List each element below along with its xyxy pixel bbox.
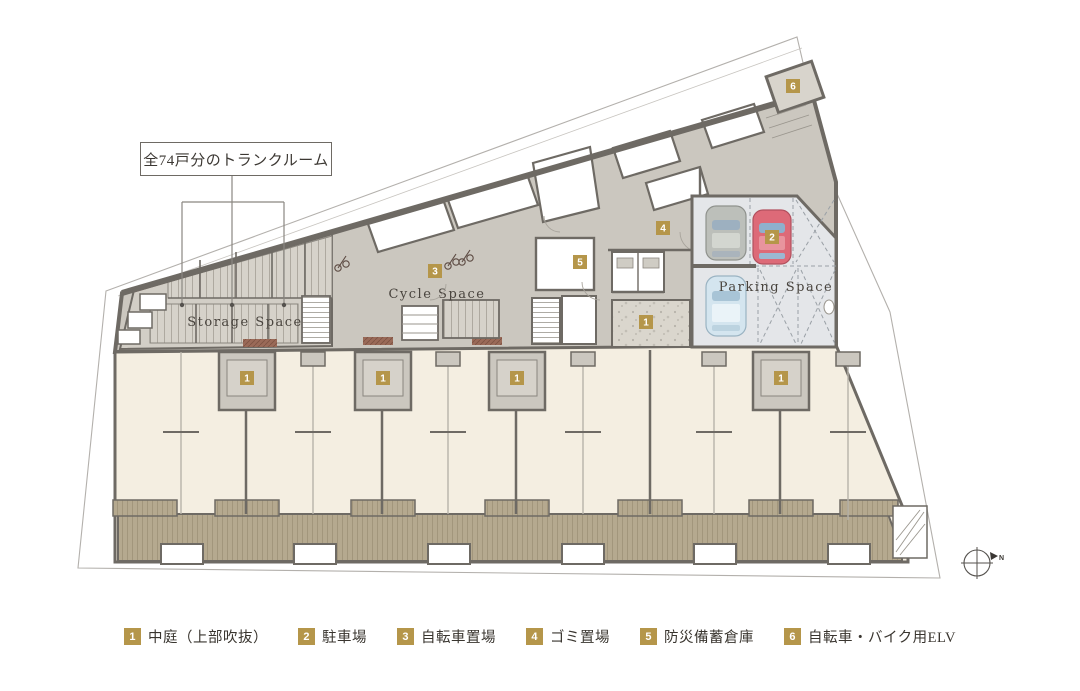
- legend-item-parking: 2 駐車場: [298, 626, 367, 647]
- legend-label-2: 駐車場: [322, 626, 367, 647]
- svg-text:4: 4: [660, 224, 666, 235]
- legend-item-disaster: 5 防災備蓄倉庫: [640, 626, 754, 647]
- storage-space-label: Storage Space: [187, 315, 303, 330]
- marker-cycle: 3: [428, 264, 442, 278]
- car-gray: [706, 206, 746, 260]
- svg-text:3: 3: [432, 267, 438, 278]
- svg-text:6: 6: [790, 82, 796, 93]
- marker-parking: 2: [765, 230, 779, 244]
- svg-text:1: 1: [643, 318, 649, 329]
- marker-courtyard-main: 1: [639, 315, 653, 329]
- marker-disaster: 5: [573, 255, 587, 269]
- svg-text:5: 5: [577, 258, 583, 269]
- marker-unit-courtyard: 1: [240, 371, 254, 385]
- legend-badge-2: 2: [298, 628, 315, 645]
- marker-unit-courtyard: 1: [774, 371, 788, 385]
- trunk-room-annotation-text: 全74戸分のトランクルーム: [143, 149, 329, 170]
- marker-garbage: 4: [656, 221, 670, 235]
- storage-area: Storage Space: [118, 232, 332, 349]
- svg-text:2: 2: [769, 233, 775, 244]
- legend-label-4: ゴミ置場: [550, 626, 610, 647]
- marker-unit-courtyard: 1: [510, 371, 524, 385]
- exterior-stair: [893, 506, 927, 558]
- marker-unit-courtyard: 1: [376, 371, 390, 385]
- svg-text:1: 1: [778, 374, 784, 385]
- svg-text:1: 1: [380, 374, 386, 385]
- legend-badge-3: 3: [397, 628, 414, 645]
- legend-item-garbage: 4 ゴミ置場: [526, 626, 610, 647]
- floor-plan-page: Storage Space Cycle Space: [0, 0, 1080, 691]
- legend-label-6: 自転車・バイク用ELV: [808, 626, 956, 647]
- compass-north-label: N: [999, 555, 1004, 562]
- parking-area: Parking Space: [692, 196, 836, 347]
- svg-text:1: 1: [514, 374, 520, 385]
- central-stair: [532, 298, 560, 344]
- legend-badge-4: 4: [526, 628, 543, 645]
- legend-item-courtyard: 1 中庭（上部吹抜）: [124, 626, 268, 647]
- marker-elv: 6: [786, 79, 800, 93]
- parking-space-label: Parking Space: [719, 280, 833, 295]
- legend-label-3: 自転車置場: [421, 626, 496, 647]
- legend-label-5: 防災備蓄倉庫: [664, 626, 754, 647]
- north-arrow-icon: [990, 552, 998, 560]
- bike-rack: [443, 300, 499, 338]
- legend-badge-5: 5: [640, 628, 657, 645]
- legend-badge-6: 6: [784, 628, 801, 645]
- deck-terraces: [113, 500, 902, 564]
- legend-item-cycle: 3 自転車置場: [397, 626, 496, 647]
- legend-badge-1: 1: [124, 628, 141, 645]
- svg-text:1: 1: [244, 374, 250, 385]
- compass: N: [961, 547, 1004, 579]
- legend-item-elv: 6 自転車・バイク用ELV: [784, 626, 956, 647]
- trunk-room-annotation: 全74戸分のトランクルーム: [140, 142, 332, 176]
- cycle-space-label: Cycle Space: [388, 287, 485, 302]
- storage-stair: [302, 296, 330, 343]
- legend: 1 中庭（上部吹抜） 2 駐車場 3 自転車置場 4 ゴミ置場 5 防災備蓄倉庫…: [0, 626, 1080, 647]
- legend-label-1: 中庭（上部吹抜）: [148, 626, 268, 647]
- floor-plan-svg: Storage Space Cycle Space: [0, 0, 1080, 691]
- fixture: [824, 300, 834, 314]
